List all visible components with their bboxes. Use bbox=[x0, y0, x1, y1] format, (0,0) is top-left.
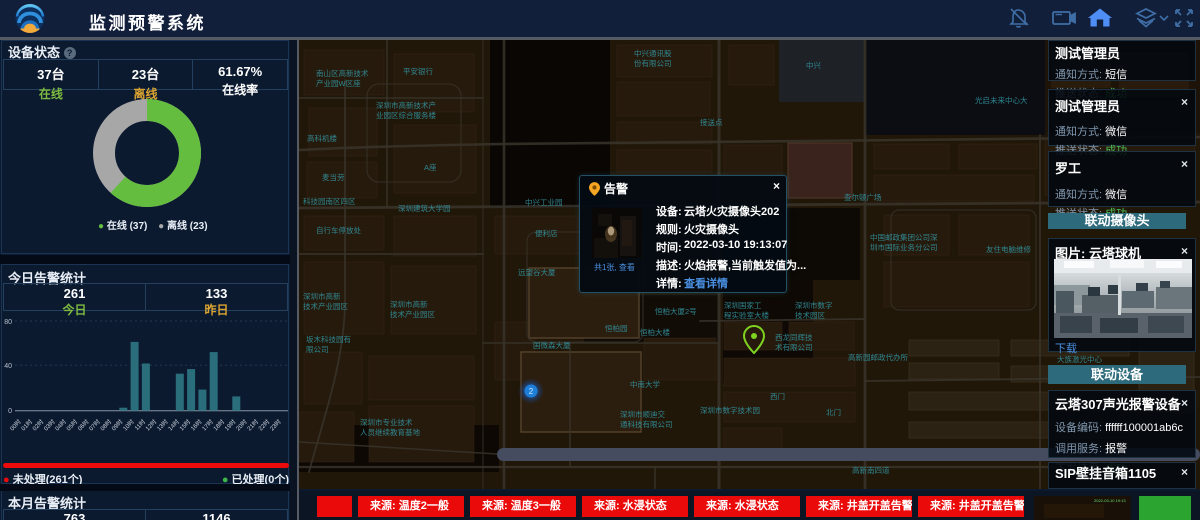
svg-text:高科机楼: 高科机楼 bbox=[307, 133, 337, 143]
svg-text:光启未来中心大: 光启未来中心大 bbox=[975, 95, 1028, 105]
svg-text:09时: 09时 bbox=[110, 418, 125, 433]
svg-text:2: 2 bbox=[529, 387, 534, 396]
svg-text:18时: 18时 bbox=[211, 418, 226, 433]
svg-text:科技园南区四区: 科技园南区四区 bbox=[303, 196, 356, 206]
svg-text:通科技有限公司: 通科技有限公司 bbox=[620, 419, 673, 429]
svg-text:深圳市高新: 深圳市高新 bbox=[390, 299, 428, 309]
svg-text:23时: 23时 bbox=[268, 418, 283, 433]
svg-text:恒柏园: 恒柏园 bbox=[605, 323, 628, 333]
svg-text:自行车停放处: 自行车停放处 bbox=[316, 225, 361, 235]
svg-text:圳市国际业务分公司: 圳市国际业务分公司 bbox=[870, 242, 938, 252]
svg-text:05时: 05时 bbox=[65, 418, 80, 433]
svg-text:40: 40 bbox=[4, 363, 12, 370]
svg-text:技术产业园区: 技术产业园区 bbox=[390, 309, 435, 319]
svg-text:西龙同辉技: 西龙同辉技 bbox=[775, 332, 813, 342]
svg-text:国微森大厦: 国微森大厦 bbox=[533, 340, 571, 350]
svg-text:17时: 17时 bbox=[200, 418, 215, 433]
svg-text:深圳国家工: 深圳国家工 bbox=[724, 300, 762, 310]
svg-text:接送点: 接送点 bbox=[700, 117, 723, 127]
svg-text:中国邮政集团公司深: 中国邮政集团公司深 bbox=[870, 232, 938, 242]
svg-text:术有限公司: 术有限公司 bbox=[775, 342, 813, 352]
svg-text:高新园邮政代办所: 高新园邮政代办所 bbox=[848, 352, 908, 362]
svg-text:14时: 14时 bbox=[166, 418, 181, 433]
svg-text:22时: 22时 bbox=[257, 418, 272, 433]
svg-text:远望谷大厦: 远望谷大厦 bbox=[518, 267, 556, 277]
svg-text:平安银行: 平安银行 bbox=[403, 66, 433, 76]
svg-text:限公司: 限公司 bbox=[306, 345, 329, 354]
svg-text:恒柏大厦2号: 恒柏大厦2号 bbox=[655, 306, 697, 316]
svg-text:北门: 北门 bbox=[826, 408, 841, 417]
svg-text:A座: A座 bbox=[424, 162, 437, 172]
svg-text:业园区综合服务楼: 业园区综合服务楼 bbox=[376, 110, 436, 120]
svg-text:深圳市高新: 深圳市高新 bbox=[303, 291, 341, 301]
svg-text:中兴通讯股: 中兴通讯股 bbox=[634, 48, 672, 58]
svg-text:深圳市高新技术产: 深圳市高新技术产 bbox=[376, 100, 436, 110]
svg-text:20时: 20时 bbox=[234, 418, 249, 433]
svg-text:查尔顿广场: 查尔顿广场 bbox=[844, 192, 882, 202]
svg-text:友住电脑维修: 友住电脑维修 bbox=[986, 244, 1031, 254]
svg-text:80: 80 bbox=[4, 319, 12, 326]
svg-text:02时: 02时 bbox=[31, 418, 46, 433]
svg-text:07时: 07时 bbox=[87, 418, 102, 433]
svg-text:程实验室大楼: 程实验室大楼 bbox=[724, 310, 769, 320]
svg-text:15时: 15时 bbox=[178, 418, 193, 433]
svg-text:0: 0 bbox=[8, 408, 12, 415]
svg-text:麦当劳: 麦当劳 bbox=[322, 172, 345, 182]
svg-text:21时: 21时 bbox=[245, 418, 260, 433]
svg-text:08时: 08时 bbox=[98, 418, 113, 433]
svg-text:深圳市顺迪交: 深圳市顺迪交 bbox=[620, 409, 665, 419]
svg-text:04时: 04时 bbox=[53, 418, 68, 433]
svg-text:中兴工业园: 中兴工业园 bbox=[525, 197, 563, 207]
svg-text:西门: 西门 bbox=[770, 392, 785, 401]
svg-text:06时: 06时 bbox=[76, 418, 91, 433]
svg-text:深圳建筑大学园: 深圳建筑大学园 bbox=[398, 203, 451, 213]
svg-text:份有限公司: 份有限公司 bbox=[634, 58, 672, 68]
svg-text:中南大学: 中南大学 bbox=[630, 379, 660, 389]
svg-text:深圳市数字技术园: 深圳市数字技术园 bbox=[700, 405, 760, 415]
svg-text:00时: 00时 bbox=[8, 418, 23, 433]
svg-text:技术园区: 技术园区 bbox=[795, 310, 825, 320]
svg-text:深圳市专业技术: 深圳市专业技术 bbox=[360, 417, 413, 427]
svg-text:16时: 16时 bbox=[189, 418, 204, 433]
svg-text:便利店: 便利店 bbox=[535, 228, 558, 238]
svg-text:01时: 01时 bbox=[19, 418, 34, 433]
svg-text:南山区高新技术: 南山区高新技术 bbox=[316, 68, 369, 78]
svg-text:10时: 10时 bbox=[121, 418, 136, 433]
svg-text:中兴: 中兴 bbox=[806, 60, 821, 70]
svg-text:产业园W区座: 产业园W区座 bbox=[316, 78, 361, 88]
svg-text:技术产业园区: 技术产业园区 bbox=[303, 301, 348, 311]
svg-text:12时: 12时 bbox=[144, 418, 159, 433]
svg-text:03时: 03时 bbox=[42, 418, 57, 433]
svg-text:恒柏大楼: 恒柏大楼 bbox=[640, 327, 670, 337]
svg-text:人员继续教育基地: 人员继续教育基地 bbox=[360, 427, 420, 437]
svg-text:深圳市数字: 深圳市数字 bbox=[795, 300, 833, 310]
svg-text:坂木科技园有: 坂木科技园有 bbox=[306, 334, 351, 344]
svg-text:11时: 11时 bbox=[133, 418, 147, 432]
svg-text:高新南四道: 高新南四道 bbox=[852, 465, 890, 475]
svg-text:19时: 19时 bbox=[223, 418, 238, 433]
svg-text:13时: 13时 bbox=[155, 418, 170, 433]
